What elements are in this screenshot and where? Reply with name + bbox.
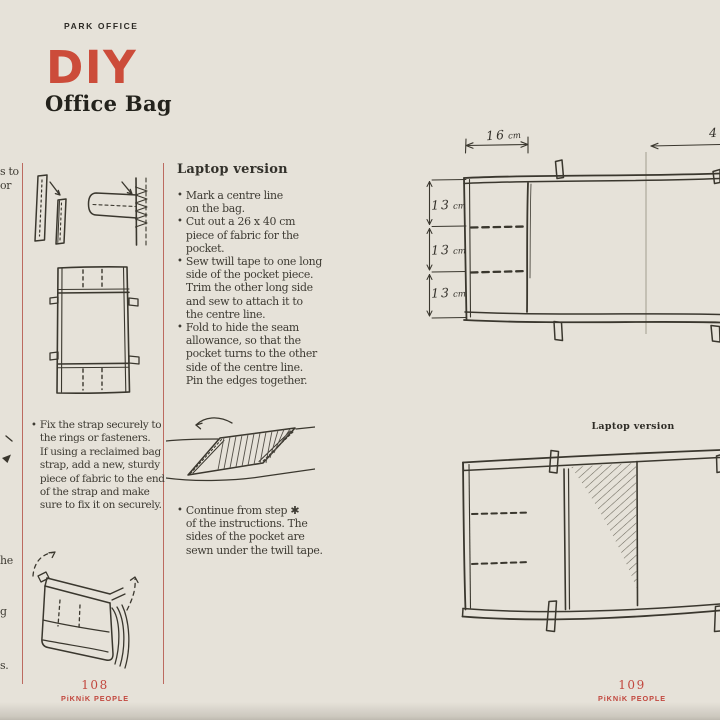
list-item: • Sew twill tape to one long side of the…	[177, 255, 329, 321]
instructions-list: • Mark a centre line on the bag. • Cut o…	[177, 189, 329, 387]
book-spread: PARK OFFICE DIY Office Bag s to or he g …	[0, 0, 720, 720]
edge-fragment: s.	[0, 659, 8, 672]
bullet-marker: •	[177, 255, 183, 321]
dim-height-label: 13cm	[431, 238, 466, 258]
edge-fragment: s to	[0, 165, 19, 178]
dim-value: 13	[431, 285, 451, 301]
dim-unit: cm	[453, 246, 466, 256]
dim-unit: cm	[453, 201, 466, 211]
edge-fragment: or	[0, 179, 11, 192]
fold-sketch	[166, 413, 315, 488]
page-number: 108	[35, 678, 155, 692]
bullet-marker: •	[177, 215, 183, 255]
step-text: Sew twill tape to one long side of the p…	[186, 255, 322, 321]
bullet-marker: •	[177, 504, 183, 557]
dim-value: 4	[709, 125, 720, 141]
bullet-marker: •	[177, 189, 183, 215]
bag-measurement-diagram	[424, 118, 720, 345]
strap-note-text: Fix the strap securely to the rings or f…	[40, 419, 165, 513]
page-subtitle: Office Bag	[45, 91, 172, 116]
step-text: Fold to hide the seam allowance, so that…	[186, 321, 317, 387]
series-kicker: PARK OFFICE	[64, 21, 139, 31]
dim-value: 13	[431, 197, 451, 213]
page-number: 109	[572, 678, 692, 692]
continue-note-text: Continue from step ✱ of the instructions…	[186, 504, 323, 557]
step-text: Cut out a 26 x 40 cm piece of fabric for…	[186, 215, 299, 255]
dim-width-label-right: 4	[709, 122, 720, 141]
dim-height-label: 13cm	[431, 193, 466, 213]
strap-sketch	[26, 168, 162, 260]
list-item: • Cut out a 26 x 40 cm piece of fabric f…	[177, 215, 329, 255]
strap-note: • Fix the strap securely to the rings or…	[31, 419, 163, 513]
dim-unit: cm	[453, 289, 466, 299]
list-item: • Fold to hide the seam allowance, so th…	[177, 321, 329, 387]
bullet-marker: •	[31, 419, 37, 513]
page-bottom-shadow	[0, 702, 720, 720]
instructions-heading: Laptop version	[177, 162, 288, 177]
flat-bag-sketch	[46, 262, 142, 398]
edge-sketch-fragment	[0, 432, 16, 472]
footer-right: 109 PiKNiK PEOPLE	[572, 678, 692, 703]
dim-unit: cm	[508, 131, 521, 142]
bullet-marker: •	[177, 321, 183, 387]
step-text: Mark a centre line on the bag.	[186, 189, 283, 215]
dim-value: 13	[431, 242, 451, 258]
edge-fragment: he	[0, 554, 13, 567]
dim-height-label: 13cm	[431, 281, 466, 301]
diagram-label: Laptop version	[588, 421, 678, 432]
laptop-version-diagram	[450, 440, 720, 640]
dim-width-label: 16cm	[485, 123, 521, 144]
footer-left: 108 PiKNiK PEOPLE	[35, 678, 155, 703]
list-item: • Mark a centre line on the bag.	[177, 189, 329, 215]
continue-note: • Continue from step ✱ of the instructio…	[177, 504, 329, 557]
dim-value: 16	[486, 127, 507, 143]
page-title: DIY	[46, 45, 137, 90]
edge-fragment: g	[0, 605, 7, 618]
finished-bag-sketch	[24, 548, 140, 670]
